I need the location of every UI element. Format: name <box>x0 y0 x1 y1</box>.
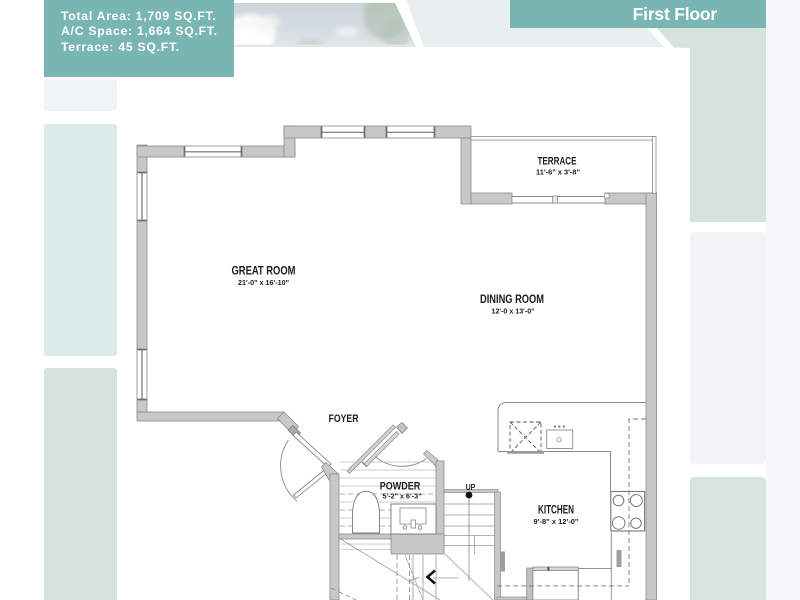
svg-text:12'-0 x 13'-0": 12'-0 x 13'-0" <box>492 307 535 316</box>
svg-text:DINING ROOM: DINING ROOM <box>480 294 544 306</box>
svg-text:5'-2" x 6'-3": 5'-2" x 6'-3" <box>383 492 422 501</box>
svg-text:9'-8" x 12'-0": 9'-8" x 12'-0" <box>534 517 579 526</box>
svg-text:11'-6" x 3'-8": 11'-6" x 3'-8" <box>536 168 580 177</box>
svg-text:21'-0" x 16'-10": 21'-0" x 16'-10" <box>238 278 289 287</box>
svg-text:TERRACE: TERRACE <box>538 156 577 168</box>
svg-text:KITCHEN: KITCHEN <box>538 505 574 517</box>
svg-text:GREAT ROOM: GREAT ROOM <box>232 266 296 278</box>
svg-text:FOYER: FOYER <box>329 413 359 425</box>
svg-text:UP: UP <box>466 483 476 492</box>
